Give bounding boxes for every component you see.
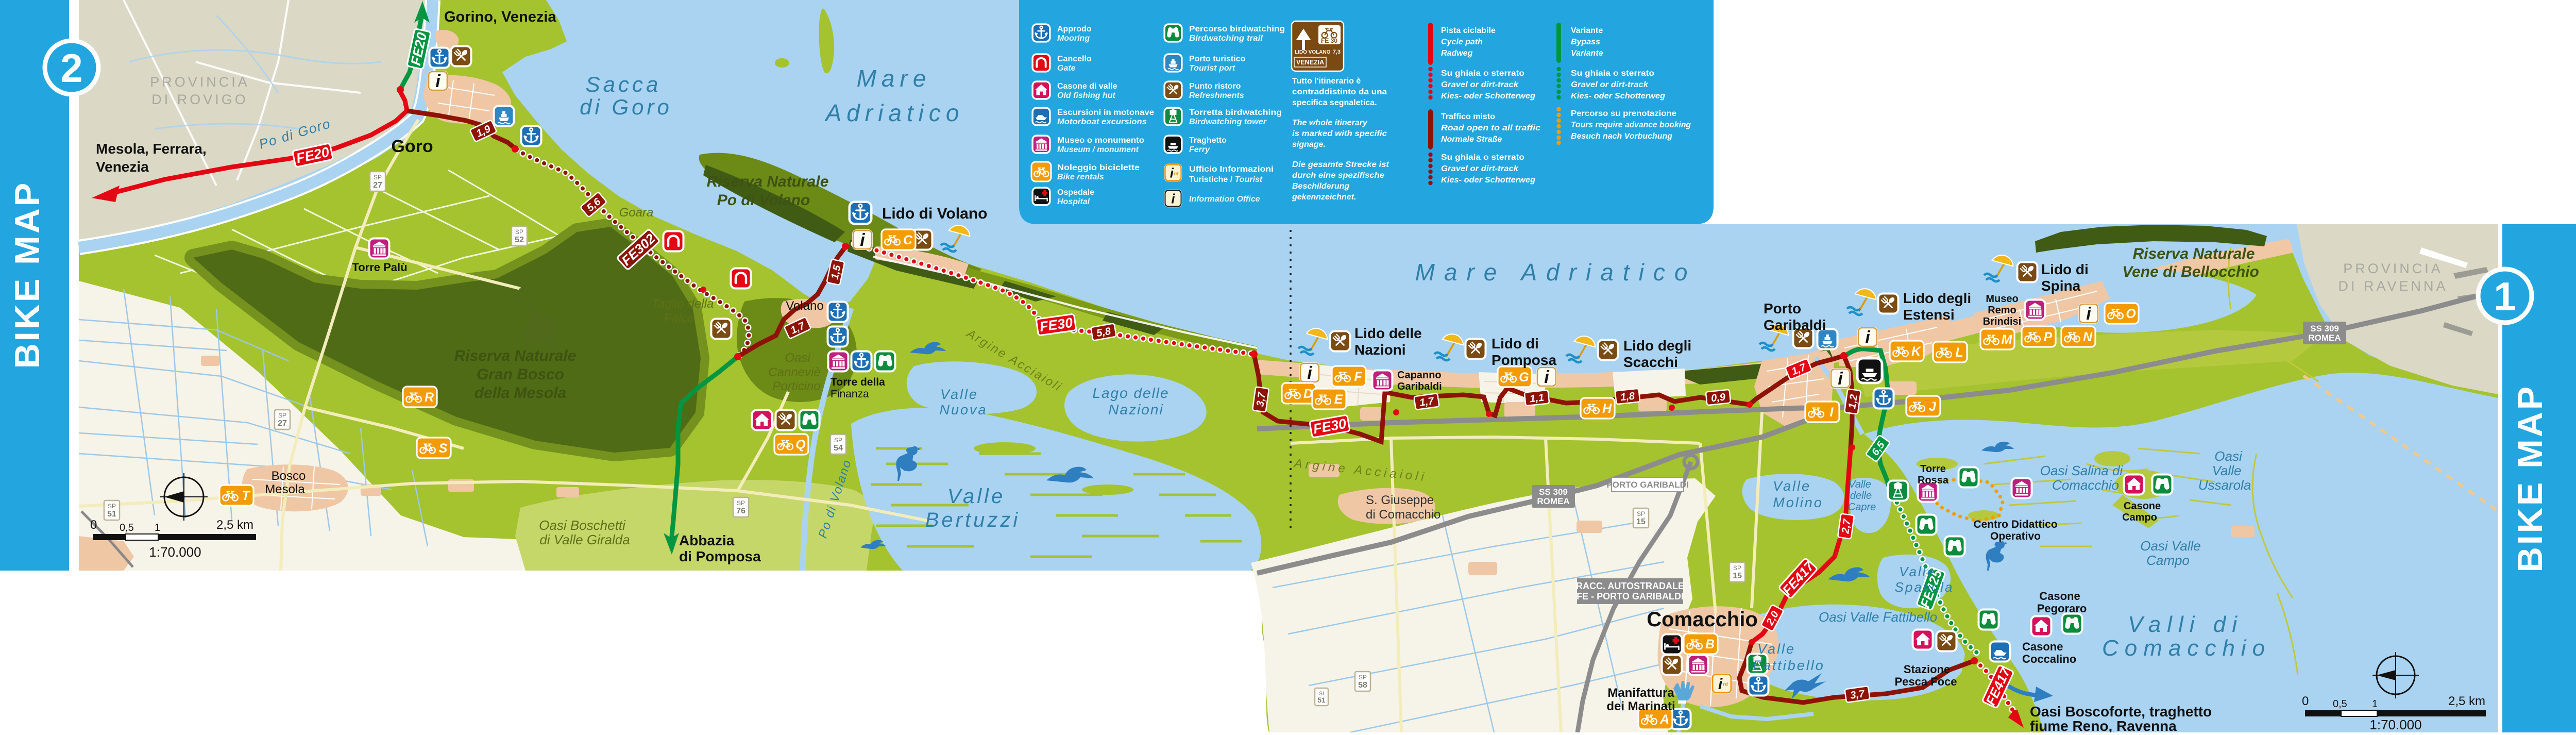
svg-text:Gravel or dirt-track: Gravel or dirt-track (1441, 80, 1519, 89)
svg-text:Torre: Torre (1920, 463, 1946, 475)
svg-text:0,5: 0,5 (120, 522, 134, 533)
svg-text:Garibaldi: Garibaldi (1397, 381, 1442, 392)
svg-text:ROMEA: ROMEA (2308, 333, 2341, 343)
svg-text:1:70.000: 1:70.000 (2369, 717, 2421, 732)
svg-text:Valle: Valle (2212, 463, 2242, 478)
svg-text:Abbazia: Abbazia (679, 532, 735, 548)
svg-text:Molino: Molino (1773, 495, 1823, 510)
svg-text:Road open to all traffic: Road open to all traffic (1441, 124, 1540, 132)
svg-text:Pesca Foce: Pesca Foce (1894, 675, 1957, 688)
svg-text:1,1: 1,1 (1529, 392, 1545, 405)
svg-text:52: 52 (515, 236, 524, 244)
svg-text:di Comacchio: di Comacchio (1366, 508, 1440, 522)
svg-text:Bertuzzi: Bertuzzi (925, 509, 1021, 531)
svg-text:Porto: Porto (1764, 300, 1801, 316)
svg-text:DI ROVIGO: DI ROVIGO (151, 92, 248, 107)
svg-text:K: K (1911, 344, 1922, 359)
svg-text:PORTO GARIBALDI: PORTO GARIBALDI (1606, 480, 1688, 490)
svg-text:Capre: Capre (1848, 502, 1876, 513)
svg-text:Pista ciclabile: Pista ciclabile (1441, 26, 1496, 35)
svg-text:Valle: Valle (940, 387, 978, 402)
svg-text:Sacca: Sacca (586, 72, 662, 96)
svg-text:Percorso su prenotazione: Percorso su prenotazione (1571, 109, 1676, 118)
svg-text:Valle: Valle (1899, 564, 1936, 579)
svg-text:Adriatico: Adriatico (824, 99, 964, 126)
svg-text:A: A (1659, 712, 1669, 727)
svg-text:SP: SP (834, 437, 842, 444)
svg-text:N: N (2083, 330, 2093, 344)
svg-text:Riserva Naturale: Riserva Naturale (707, 173, 829, 190)
svg-text:Mare Adriatico: Mare Adriatico (1415, 259, 1697, 286)
svg-text:Lido delle: Lido delle (1354, 325, 1422, 341)
svg-text:Campo: Campo (2122, 512, 2157, 523)
svg-text:Lido di: Lido di (1492, 336, 1539, 352)
svg-text:Tours require advance booking: Tours require advance booking (1571, 121, 1691, 129)
svg-text:Ferry: Ferry (1189, 145, 1210, 154)
svg-text:Kies- oder Schotterweg: Kies- oder Schotterweg (1571, 92, 1665, 101)
svg-text:Refreshments: Refreshments (1189, 91, 1244, 100)
svg-text:Besuch nach Vorbuchung: Besuch nach Vorbuchung (1571, 132, 1672, 141)
svg-text:Noleggio biciclette: Noleggio biciclette (1057, 163, 1140, 172)
svg-text:Punto ristoro: Punto ristoro (1189, 82, 1241, 91)
svg-text:SP: SP (108, 503, 116, 510)
svg-text:Ufficio Informazioni: Ufficio Informazioni (1189, 165, 1274, 174)
svg-text:Traghetto: Traghetto (1189, 136, 1227, 145)
svg-text:Comacchio: Comacchio (2102, 636, 2271, 661)
svg-text:Valli di: Valli di (2128, 612, 2243, 637)
svg-text:Gravel or dirt-track: Gravel or dirt-track (1571, 80, 1649, 89)
svg-text:Campo: Campo (2146, 553, 2190, 568)
svg-text:Oasi Salina di: Oasi Salina di (2040, 463, 2124, 478)
svg-text:Pegoraro: Pegoraro (2037, 602, 2087, 615)
svg-text:Tourist port: Tourist port (1189, 64, 1235, 73)
svg-text:S. Giuseppe: S. Giuseppe (1366, 493, 1434, 507)
svg-text:Torretta birdwatching: Torretta birdwatching (1189, 108, 1282, 117)
svg-text:di Valle Giralda: di Valle Giralda (539, 532, 630, 547)
svg-text:Gran Bosco: Gran Bosco (477, 366, 564, 383)
svg-text:M: M (2002, 332, 2013, 347)
svg-text:SP: SP (1637, 510, 1645, 517)
svg-text:Nazioni: Nazioni (1108, 402, 1163, 417)
svg-text:Remo: Remo (1988, 305, 2016, 316)
svg-text:Venezia: Venezia (96, 159, 149, 175)
svg-text:Motorboat excursions: Motorboat excursions (1057, 118, 1147, 126)
svg-text:Porto turistico: Porto turistico (1189, 55, 1246, 63)
svg-text:Museo: Museo (1986, 293, 2018, 305)
svg-text:G: G (1519, 370, 1529, 385)
svg-text:DI RAVENNA: DI RAVENNA (2338, 278, 2448, 294)
svg-text:fiume Reno, Ravenna: fiume Reno, Ravenna (2030, 718, 2177, 732)
svg-text:54: 54 (834, 444, 843, 453)
svg-text:S: S (439, 441, 448, 456)
svg-text:Lido di: Lido di (2041, 261, 2089, 277)
svg-text:Garibaldi: Garibaldi (1764, 317, 1826, 333)
svg-text:Volano: Volano (786, 299, 823, 313)
svg-text:Approdo: Approdo (1057, 25, 1092, 34)
svg-text:E: E (1334, 392, 1344, 407)
svg-text:Pomposa: Pomposa (1492, 352, 1556, 368)
svg-text:0,9: 0,9 (1710, 392, 1726, 405)
svg-text:Rossa: Rossa (1918, 475, 1949, 486)
svg-text:Mare: Mare (857, 65, 931, 92)
svg-text:SP: SP (278, 412, 286, 419)
svg-text:Taglio della: Taglio della (652, 297, 714, 311)
svg-text:76: 76 (736, 507, 745, 515)
svg-text:Kies- oder Schotterweg: Kies- oder Schotterweg (1441, 92, 1535, 101)
svg-text:7,3: 7,3 (1333, 49, 1341, 55)
svg-text:FE - PORTO GARIBALDI: FE - PORTO GARIBALDI (1577, 591, 1684, 602)
svg-text:Spavola: Spavola (1895, 579, 1954, 595)
svg-text:51: 51 (1317, 696, 1326, 704)
svg-text:PROVINCIA: PROVINCIA (150, 74, 250, 90)
svg-text:Nazioni: Nazioni (1354, 342, 1406, 358)
svg-text:Tutto l'itinerario è: Tutto l'itinerario è (1292, 77, 1361, 86)
svg-text:Lido degli: Lido degli (1623, 338, 1691, 354)
svg-text:H: H (1602, 402, 1612, 416)
svg-text:RACC. AUTOSTRADALE: RACC. AUTOSTRADALE (1576, 581, 1684, 591)
svg-text:Valle: Valle (947, 485, 1005, 508)
svg-text:Manifattura: Manifattura (1607, 686, 1674, 700)
svg-text:Riserva Naturale: Riserva Naturale (454, 347, 577, 364)
svg-text:Normale Straße: Normale Straße (1441, 135, 1502, 144)
svg-text:Casone: Casone (2124, 500, 2161, 512)
svg-text:Casone: Casone (2039, 590, 2080, 603)
svg-text:Mooring: Mooring (1057, 34, 1090, 43)
svg-text:Traffico misto: Traffico misto (1441, 112, 1495, 121)
svg-text:Riserva Naturale: Riserva Naturale (2133, 245, 2255, 262)
svg-text:contraddistinto da una: contraddistinto da una (1292, 88, 1387, 96)
svg-text:Oasi Valle: Oasi Valle (2140, 538, 2201, 554)
svg-text:Lago delle: Lago delle (1092, 385, 1169, 401)
svg-text:15: 15 (1733, 572, 1742, 580)
svg-text:Valle: Valle (1757, 641, 1795, 657)
svg-text:1,7: 1,7 (1419, 395, 1435, 409)
svg-text:Escursioni in motonave: Escursioni in motonave (1057, 108, 1154, 117)
svg-text:R: R (425, 390, 434, 405)
svg-text:2,5 km: 2,5 km (216, 518, 253, 532)
svg-text:2: 2 (60, 45, 82, 91)
svg-text:SP: SP (1733, 564, 1741, 572)
svg-text:durch eine spezifische: durch eine spezifische (1292, 171, 1384, 180)
svg-text:di Goro: di Goro (580, 95, 672, 119)
svg-text:Gate: Gate (1057, 64, 1076, 73)
svg-text:BIKE MAP: BIKE MAP (8, 181, 47, 369)
svg-text:Lido di Volano: Lido di Volano (882, 205, 987, 222)
svg-text:BIKE MAP: BIKE MAP (2511, 385, 2550, 572)
svg-text:Radweg: Radweg (1441, 49, 1473, 58)
svg-text:Operativo: Operativo (1990, 530, 2041, 542)
svg-text:ROMEA: ROMEA (1537, 496, 1569, 506)
svg-text:Oasi Boschetti: Oasi Boschetti (539, 517, 626, 533)
svg-text:Spina: Spina (2041, 278, 2081, 294)
svg-text:Porticino: Porticino (772, 379, 820, 393)
svg-text:gekennzeichnet.: gekennzeichnet. (1292, 193, 1356, 202)
svg-text:1: 1 (2372, 698, 2378, 710)
svg-text:Coccalino: Coccalino (2022, 653, 2076, 665)
svg-text:FE 30: FE 30 (1321, 37, 1337, 44)
svg-text:Falce: Falce (664, 311, 694, 325)
svg-text:C: C (903, 233, 913, 247)
svg-text:VENEZIA: VENEZIA (1296, 59, 1324, 66)
svg-text:SS 309: SS 309 (2310, 324, 2339, 333)
svg-text:dei Marinati: dei Marinati (1606, 699, 1675, 713)
svg-text:Comacchio: Comacchio (1647, 608, 1758, 631)
svg-text:0: 0 (90, 518, 97, 532)
svg-text:Birdwatching trail: Birdwatching trail (1189, 34, 1263, 43)
svg-text:Oasi: Oasi (2214, 448, 2243, 464)
svg-text:Beschilderung: Beschilderung (1292, 182, 1349, 191)
svg-text:2,7: 2,7 (1840, 518, 1853, 534)
svg-text:Vene di Bellocchio: Vene di Bellocchio (2122, 263, 2259, 280)
svg-text:Torre Palù: Torre Palù (352, 261, 407, 274)
svg-text:Gravel or dirt-track: Gravel or dirt-track (1441, 164, 1519, 173)
svg-text:Goara: Goara (619, 206, 654, 220)
svg-text:51: 51 (107, 510, 116, 519)
svg-text:15: 15 (1636, 517, 1646, 526)
svg-text:27: 27 (373, 181, 382, 190)
svg-text:Bike rentals: Bike rentals (1057, 173, 1104, 181)
svg-text:SS 309: SS 309 (1539, 487, 1568, 497)
svg-text:Cancello: Cancello (1057, 55, 1092, 63)
svg-text:PROVINCIA: PROVINCIA (2343, 261, 2443, 276)
svg-text:D: D (1303, 387, 1313, 401)
svg-text:is marked with specific: is marked with specific (1292, 129, 1387, 138)
svg-text:Turistiche / Tourist: Turistiche / Tourist (1189, 175, 1263, 184)
svg-text:Casone: Casone (2022, 640, 2063, 653)
svg-text:Canneviè: Canneviè (768, 365, 820, 379)
svg-text:Finanza: Finanza (831, 388, 869, 400)
svg-text:Mesola: Mesola (265, 482, 305, 496)
svg-text:Stazione: Stazione (1904, 663, 1950, 676)
svg-text:Oasi Boscoforte, traghetto: Oasi Boscoforte, traghetto (2030, 704, 2212, 720)
svg-text:di Pomposa: di Pomposa (679, 548, 761, 564)
svg-text:Birdwatching tower: Birdwatching tower (1189, 118, 1267, 126)
svg-text:3,7: 3,7 (1255, 391, 1268, 407)
svg-text:SP: SP (515, 228, 523, 236)
svg-text:Estensi: Estensi (1903, 307, 1955, 323)
svg-text:specifica segnaletica.: specifica segnaletica. (1292, 98, 1377, 107)
svg-text:Mesola, Ferrara,: Mesola, Ferrara, (96, 141, 207, 157)
svg-text:Ussarola: Ussarola (2198, 477, 2251, 493)
svg-text:Oasi Valle Fattibello: Oasi Valle Fattibello (1819, 609, 1937, 625)
svg-text:Q: Q (795, 438, 806, 452)
svg-text:P: P (2044, 330, 2053, 344)
svg-text:Gorino, Venezia: Gorino, Venezia (444, 9, 556, 25)
svg-text:SP: SP (1359, 674, 1367, 681)
svg-text:Information Office: Information Office (1189, 195, 1260, 204)
svg-text:SP: SP (737, 499, 745, 507)
svg-text:Centro Didattico: Centro Didattico (1973, 519, 2057, 530)
svg-text:Comacchio: Comacchio (2052, 477, 2119, 493)
svg-text:Valle: Valle (1773, 478, 1811, 494)
svg-text:Nuova: Nuova (939, 402, 987, 417)
svg-text:3,7: 3,7 (1850, 688, 1866, 701)
svg-text:Su ghiaia o sterrato: Su ghiaia o sterrato (1441, 153, 1524, 162)
svg-text:B: B (1705, 637, 1715, 652)
svg-text:The whole itinerary: The whole itinerary (1292, 119, 1368, 127)
svg-text:Capanno: Capanno (1397, 370, 1442, 381)
svg-text:Percorso birdwatching: Percorso birdwatching (1189, 25, 1285, 34)
svg-text:Po di Volano: Po di Volano (717, 192, 810, 209)
svg-text:Oasi: Oasi (785, 351, 810, 365)
svg-text:1: 1 (155, 522, 160, 533)
svg-text:Variante: Variante (1571, 26, 1603, 35)
svg-text:della Mesola: della Mesola (474, 385, 566, 402)
svg-text:Old fishing hut: Old fishing hut (1057, 91, 1116, 100)
svg-text:Fattibello: Fattibello (1753, 658, 1825, 673)
svg-text:Hospital: Hospital (1057, 197, 1090, 206)
svg-text:Museo o monumento: Museo o monumento (1057, 136, 1144, 145)
svg-text:O: O (2126, 307, 2136, 321)
svg-text:1,8: 1,8 (1620, 391, 1636, 404)
svg-text:LIDO VOLANO: LIDO VOLANO (1295, 49, 1331, 55)
svg-text:L: L (1955, 345, 1963, 360)
svg-text:Casone di valle: Casone di valle (1057, 82, 1117, 91)
svg-text:F: F (1354, 370, 1362, 384)
svg-text:Scacchi: Scacchi (1623, 354, 1678, 370)
svg-text:J: J (1929, 399, 1937, 414)
svg-text:Bypass: Bypass (1571, 38, 1600, 46)
svg-text:Torre della: Torre della (831, 376, 885, 388)
svg-text:1: 1 (2494, 274, 2516, 319)
svg-text:Su ghiaia o sterrato: Su ghiaia o sterrato (1571, 69, 1654, 78)
svg-text:Valle: Valle (1849, 479, 1871, 490)
svg-text:0: 0 (2302, 694, 2309, 708)
svg-text:Museum / monument: Museum / monument (1057, 145, 1139, 154)
svg-text:1,2: 1,2 (1846, 394, 1860, 410)
svg-text:2,5 km: 2,5 km (2448, 694, 2485, 708)
svg-text:Kies- oder Schotterweg: Kies- oder Schotterweg (1441, 176, 1535, 185)
svg-text:Su ghiaia o sterrato: Su ghiaia o sterrato (1441, 69, 1524, 78)
svg-text:Lido degli: Lido degli (1903, 290, 1971, 306)
svg-text:Cycle path: Cycle path (1441, 38, 1483, 46)
svg-text:Die gesamte Strecke ist: Die gesamte Strecke ist (1292, 160, 1389, 169)
svg-text:Brindisi: Brindisi (1983, 316, 2021, 327)
svg-text:27: 27 (278, 419, 287, 428)
svg-text:58: 58 (1358, 681, 1367, 690)
svg-text:signage.: signage. (1292, 140, 1326, 149)
svg-text:0,5: 0,5 (2333, 698, 2347, 710)
svg-text:Goro: Goro (391, 137, 433, 156)
svg-text:Variante: Variante (1571, 49, 1603, 58)
svg-text:I: I (1830, 405, 1834, 420)
svg-text:delle: delle (1850, 490, 1872, 502)
svg-text:Ospedale: Ospedale (1057, 188, 1094, 197)
svg-text:SP: SP (374, 174, 382, 181)
svg-text:Bosco: Bosco (272, 469, 306, 483)
svg-text:1:70.000: 1:70.000 (149, 544, 201, 560)
